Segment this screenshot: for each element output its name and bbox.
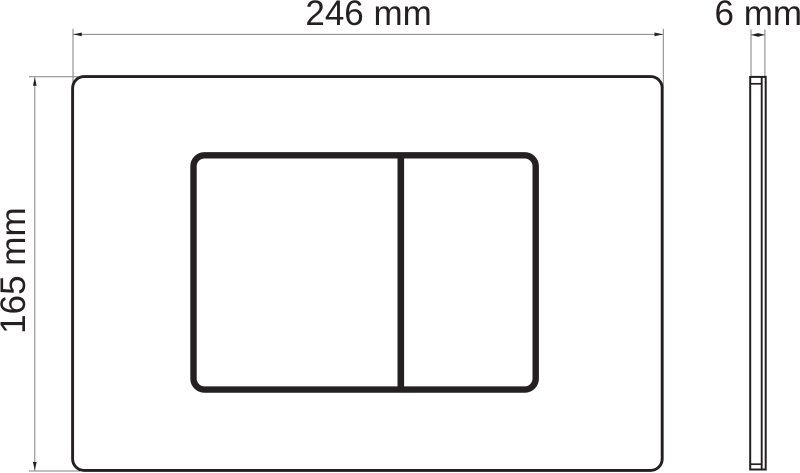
svg-text:6 mm: 6 mm [715,0,800,33]
svg-text:246 mm: 246 mm [305,0,431,33]
svg-text:165 mm: 165 mm [0,207,33,333]
